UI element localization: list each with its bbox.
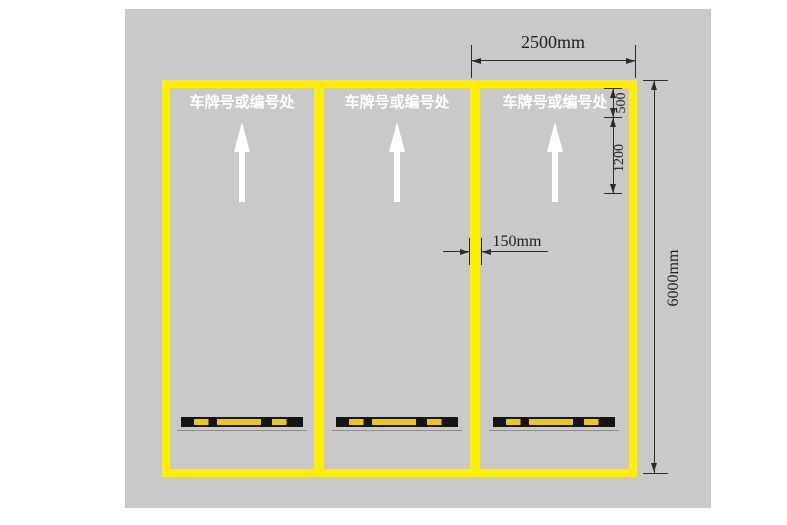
wheel-stop-2 [336, 417, 458, 427]
dim-500-label: 500 [615, 83, 629, 123]
arrowhead-down-icon [651, 463, 657, 472]
wheel-stop-stripes [182, 419, 302, 425]
dim-1200-label: 1200 [613, 138, 627, 178]
space-label-3: 车牌号或编号处 [480, 94, 630, 111]
arrow-shaft [552, 151, 558, 202]
wheel-stop-shadow [332, 430, 462, 431]
arrowhead-left-icon [472, 58, 481, 64]
arrowhead-right-icon [626, 58, 635, 64]
dim-150-tick-left [469, 238, 470, 265]
dim-2500-extension-right [635, 45, 636, 78]
wheel-stop-shadow [489, 430, 619, 431]
dim-1200-tick-bottom [604, 193, 622, 194]
dim-2500-label: 2500mm [473, 32, 633, 53]
wheel-stop-stripes [337, 419, 457, 425]
up-arrow-icon [234, 122, 250, 202]
bay-divider-2 [470, 80, 480, 477]
arrowhead-up-icon [651, 81, 657, 90]
up-arrow-icon [389, 122, 405, 202]
dim-6000-line [654, 80, 655, 473]
diagram-canvas: 车牌号或编号处 车牌号或编号处 车牌号或编号处 2500mm 500 1200 [0, 0, 787, 525]
wheel-stop-3 [493, 417, 615, 427]
up-arrow-icon [547, 122, 563, 202]
wheel-stop-1 [181, 417, 303, 427]
arrowhead-down-icon [610, 184, 616, 193]
dim-2500-line [472, 60, 635, 61]
wheel-stop-shadow [177, 430, 307, 431]
wheel-stop-stripes [494, 419, 614, 425]
arrow-head [547, 122, 563, 152]
dim-150-leader-right [482, 251, 548, 252]
bay-divider-1 [314, 80, 324, 477]
arrow-shaft [239, 151, 245, 202]
arrow-head [234, 122, 250, 152]
arrow-shaft [394, 151, 400, 202]
arrow-head [389, 122, 405, 152]
dim-150-label: 150mm [486, 233, 548, 251]
space-label-1: 车牌号或编号处 [167, 94, 317, 111]
space-label-2: 车牌号或编号处 [322, 94, 472, 111]
dim-6000-tick-bottom [643, 473, 668, 474]
dim-6000-label: 6000mm [666, 243, 682, 313]
arrowhead-right-icon [460, 249, 469, 255]
